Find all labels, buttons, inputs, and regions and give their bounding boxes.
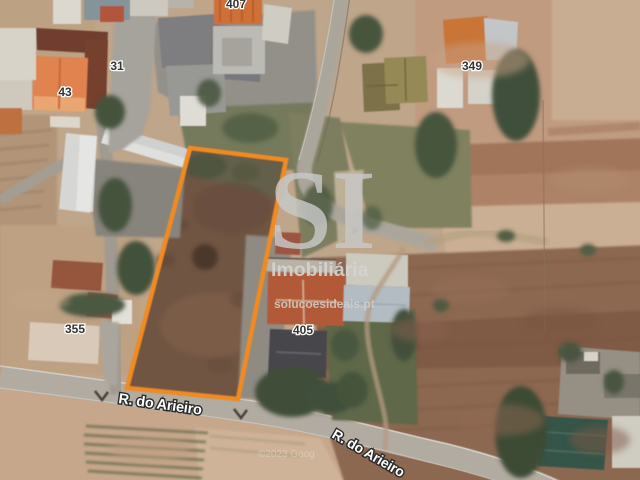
svg-text:349: 349 (462, 59, 482, 73)
svg-text:SI: SI (269, 148, 376, 273)
svg-text:407: 407 (226, 0, 246, 11)
svg-text:Imobiliária: Imobiliária (271, 259, 369, 281)
svg-text:©2023 Goog: ©2023 Goog (258, 449, 315, 460)
svg-text:43: 43 (58, 85, 72, 99)
svg-text:405: 405 (293, 323, 313, 337)
svg-text:solucoesideais.pt: solucoesideais.pt (274, 297, 375, 311)
svg-text:355: 355 (65, 322, 85, 336)
svg-text:31: 31 (110, 59, 124, 73)
